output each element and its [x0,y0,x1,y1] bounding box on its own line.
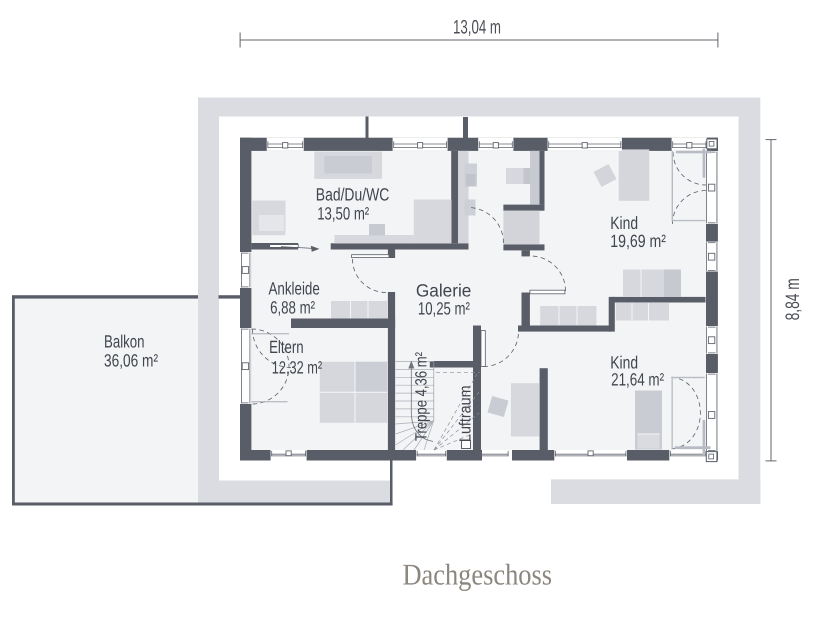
svg-text:Treppe 4,36 m²: Treppe 4,36 m² [413,352,431,441]
svg-text:13,04 m: 13,04 m [453,17,501,39]
svg-text:Balkon: Balkon [104,331,145,351]
svg-text:Ankleide: Ankleide [269,278,320,298]
svg-text:Eltern: Eltern [269,337,304,357]
svg-text:12,32 m²: 12,32 m² [272,357,322,377]
svg-text:Luftraum: Luftraum [457,386,475,443]
svg-text:Bad/Du/WC: Bad/Du/WC [316,185,390,205]
svg-text:Dachgeschoss: Dachgeschoss [403,559,553,592]
svg-text:36,06 m²: 36,06 m² [104,351,158,371]
svg-text:6,88 m²: 6,88 m² [270,298,315,318]
svg-text:8,84 m: 8,84 m [782,278,804,320]
svg-text:19,69 m²: 19,69 m² [610,231,666,251]
svg-text:13,50 m²: 13,50 m² [317,203,369,223]
svg-text:10,25 m²: 10,25 m² [418,298,470,318]
svg-text:21,64 m²: 21,64 m² [611,370,664,390]
